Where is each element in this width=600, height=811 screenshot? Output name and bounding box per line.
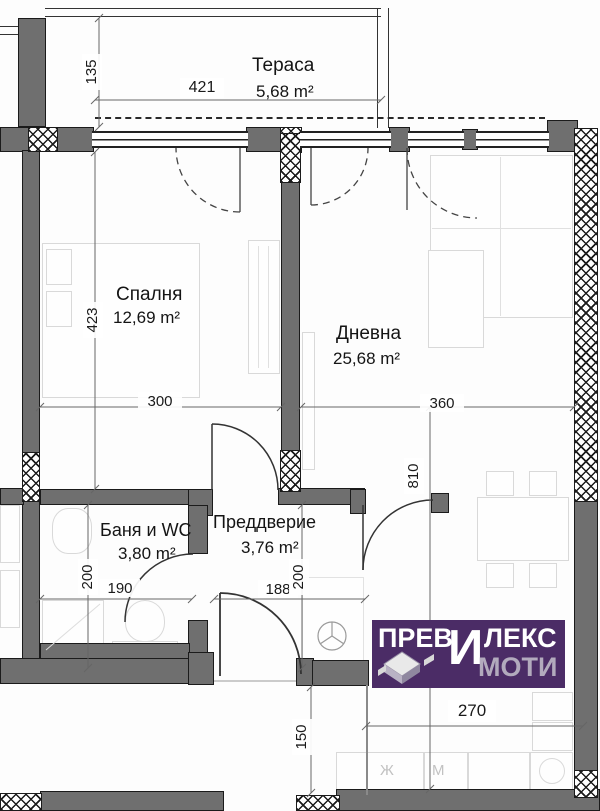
dim-bath-depth: 200 <box>78 559 98 595</box>
dim-bath-width: 190 <box>100 579 140 597</box>
balcony-door-bedroom <box>176 148 240 212</box>
room-area-living: 25,68 m² <box>333 349 400 369</box>
kitchen-washer-label: М <box>432 762 445 779</box>
dim-terrace-width: 421 <box>180 78 224 98</box>
plan-annotations-svg <box>0 0 600 811</box>
dim-living-width: 360 <box>420 394 464 412</box>
room-label-living: Дневна <box>336 323 401 345</box>
balcony-door-living-left <box>311 148 368 205</box>
dim-kitchen-width: 270 <box>448 700 496 722</box>
dim-bedroom-width: 300 <box>138 392 182 410</box>
logo-word2: МОТИ <box>478 654 557 681</box>
room-area-terrace: 5,68 m² <box>256 82 314 102</box>
shower-diagonal <box>46 604 100 650</box>
logo-house-icon <box>376 648 442 686</box>
dim-bedroom-depth: 423 <box>83 302 103 338</box>
room-area-bath: 3,80 m² <box>118 544 176 564</box>
room-label-terrace: Тераса <box>252 55 314 77</box>
room-area-hall: 3,76 m² <box>241 538 299 558</box>
dim-living-depth: 810 <box>404 458 424 494</box>
balcony-door-living-right <box>407 148 477 218</box>
dim-bottom-offset: 150 <box>292 719 312 755</box>
room-label-bath: Баня и WC <box>100 520 192 541</box>
room-area-bedroom: 12,69 m² <box>113 308 180 328</box>
floor-plan: 421 135 423 300 360 810 200 190 188 200 … <box>0 0 600 811</box>
water-heater-icon <box>318 622 346 650</box>
kitchen-fridge-label: Ж <box>380 762 394 779</box>
logo-word1-right: ЛЕКС <box>484 625 557 652</box>
dim-terrace-depth: 135 <box>82 54 102 90</box>
dim-hall-depth: 200 <box>289 559 309 595</box>
room-label-bedroom: Спалня <box>116 284 182 306</box>
living-room-door <box>363 500 433 570</box>
room-label-hall: Преддверие <box>213 512 316 533</box>
agency-logo: ПРЕВ И ЛЕКС МОТИ <box>372 620 565 688</box>
bedroom-door <box>212 424 278 490</box>
entrance-door <box>214 593 301 681</box>
